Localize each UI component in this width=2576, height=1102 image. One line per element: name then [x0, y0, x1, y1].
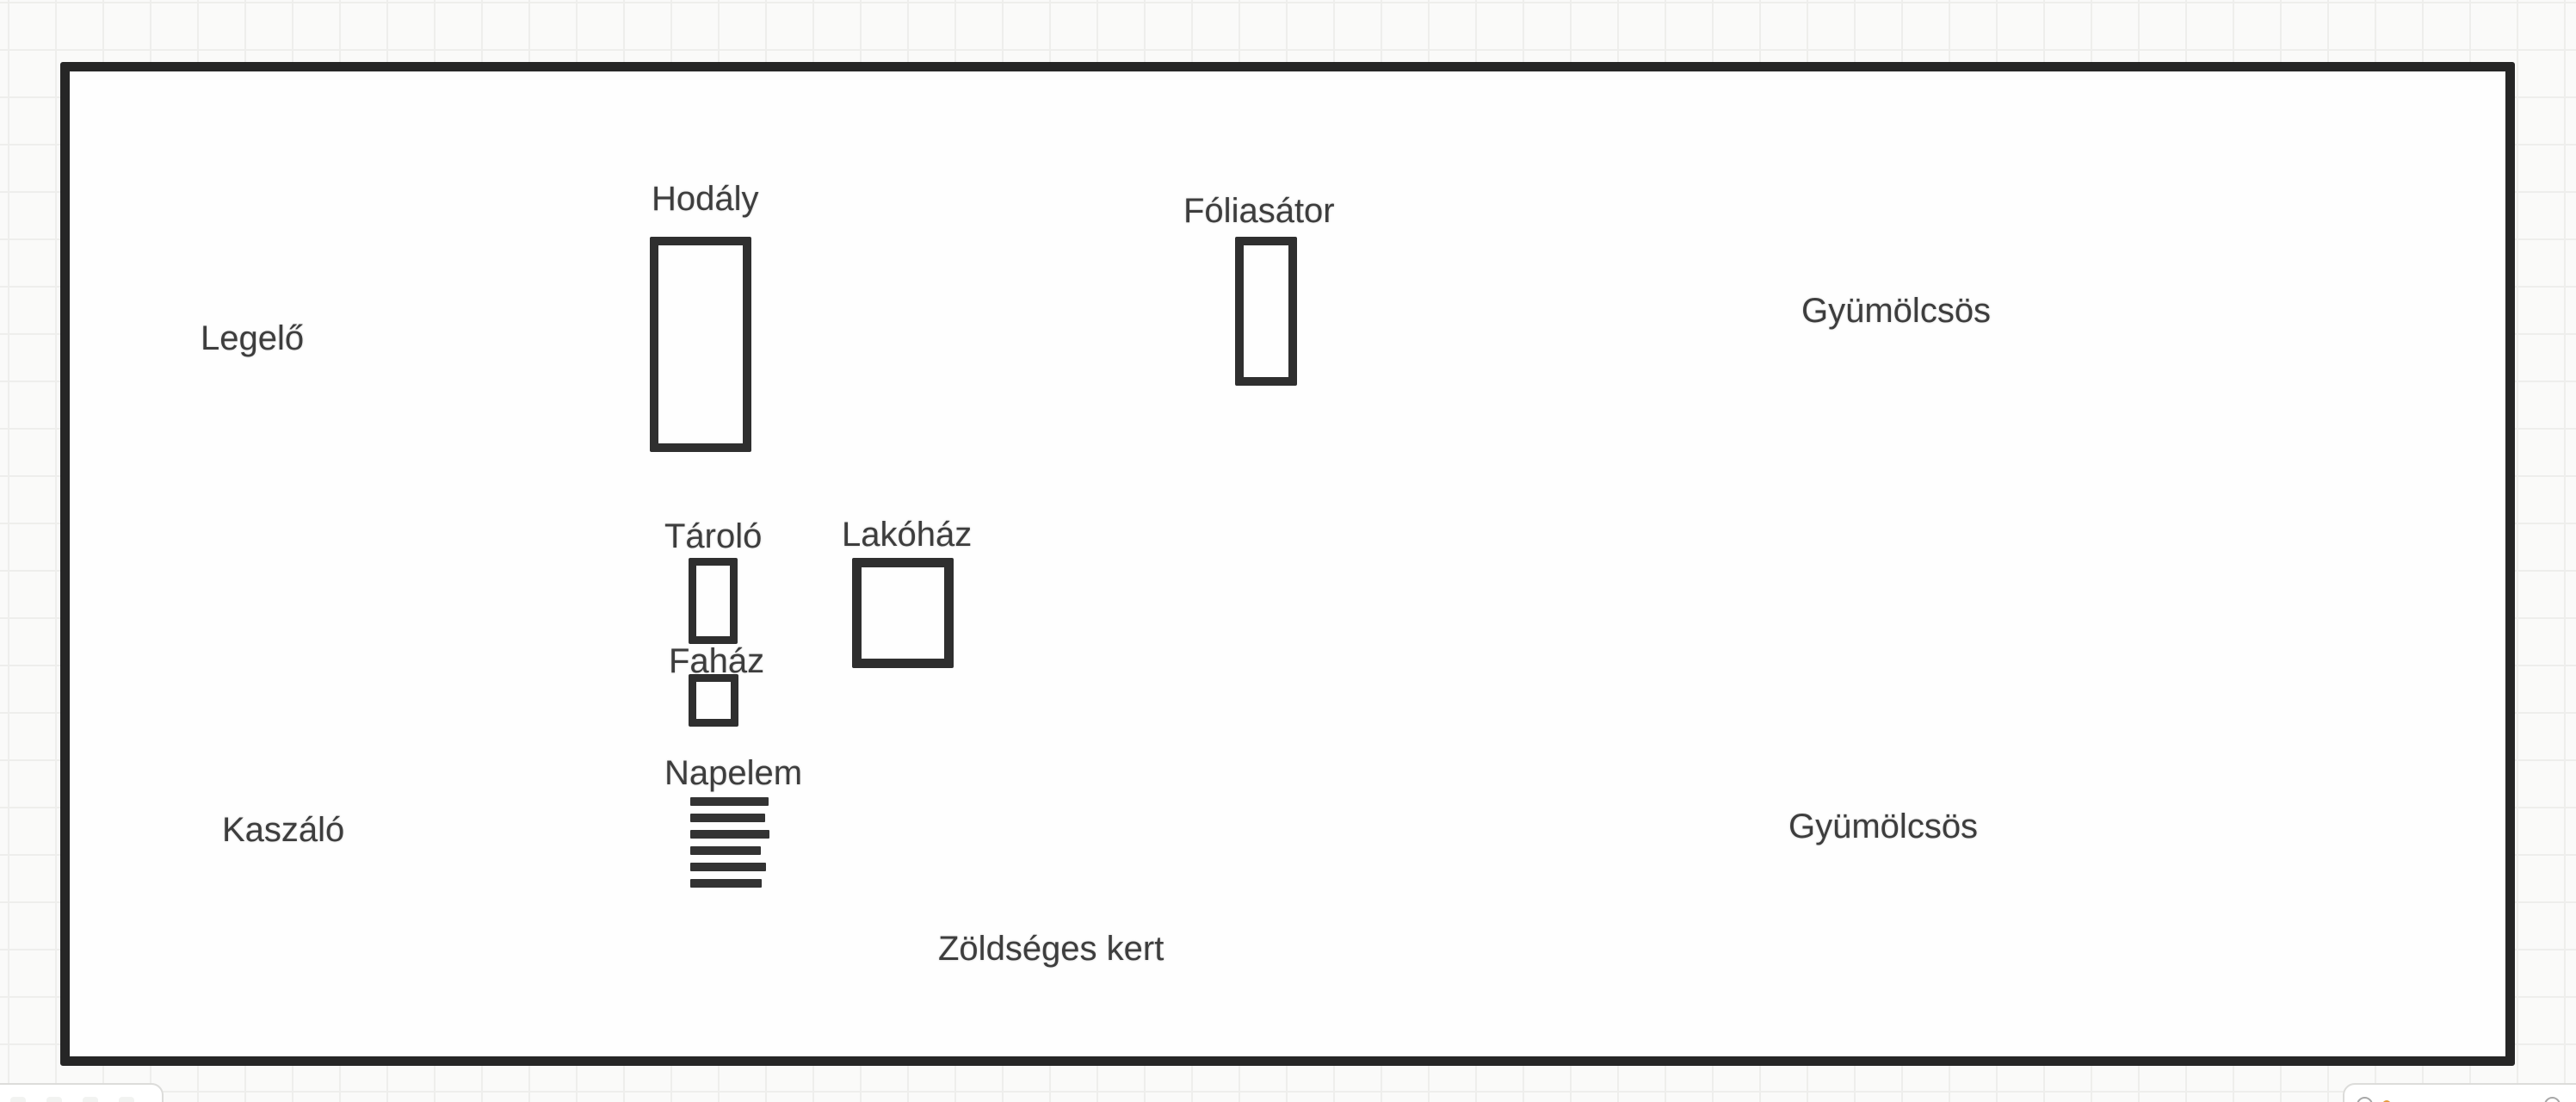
foliasator-rect [1235, 237, 1297, 386]
zoldseges-kert-label: Zöldséges kert [938, 931, 1164, 967]
stripe [690, 846, 761, 855]
tarolo-label: Tároló [664, 518, 762, 554]
bottom-left-toolbar[interactable] [0, 1083, 164, 1102]
stripe [690, 797, 769, 806]
fahaz-rect [689, 674, 738, 727]
hodaly-label: Hodály [652, 181, 759, 217]
napelem-stripes [690, 797, 772, 888]
whiteboard-canvas: Hodály Fóliasátor Gyümölcsös Legelő Táro… [0, 0, 2576, 1102]
stripe [690, 814, 765, 822]
toolbar-chip-icon[interactable] [46, 1097, 62, 1102]
lakohaz-rect [852, 558, 954, 668]
foliasator-label: Fóliasátor [1183, 193, 1335, 229]
property-boundary-rect: Hodály Fóliasátor Gyümölcsös Legelő Táro… [60, 62, 2515, 1066]
circle-swatch-icon[interactable] [2357, 1097, 2373, 1102]
legelo-label: Legelő [201, 320, 304, 356]
circle-swatch-icon[interactable] [2544, 1097, 2561, 1102]
kaszalo-label: Kaszáló [222, 812, 344, 848]
napelem-label: Napelem [664, 755, 802, 791]
tarolo-rect [689, 558, 738, 644]
bottom-right-toolbar[interactable] [2343, 1083, 2576, 1102]
stripe [690, 879, 762, 888]
toolbar-chip-icon[interactable] [10, 1097, 26, 1102]
gyumolcsos-top-label: Gyümölcsös [1801, 293, 1991, 329]
lakohaz-label: Lakóház [842, 517, 972, 553]
toolbar-chip-icon[interactable] [83, 1097, 98, 1102]
gyumolcsos-bottom-label: Gyümölcsös [1788, 808, 1978, 845]
stripe [690, 830, 769, 839]
stripe [690, 863, 766, 871]
hodaly-rect [650, 237, 751, 452]
toolbar-chip-icon[interactable] [119, 1097, 134, 1102]
